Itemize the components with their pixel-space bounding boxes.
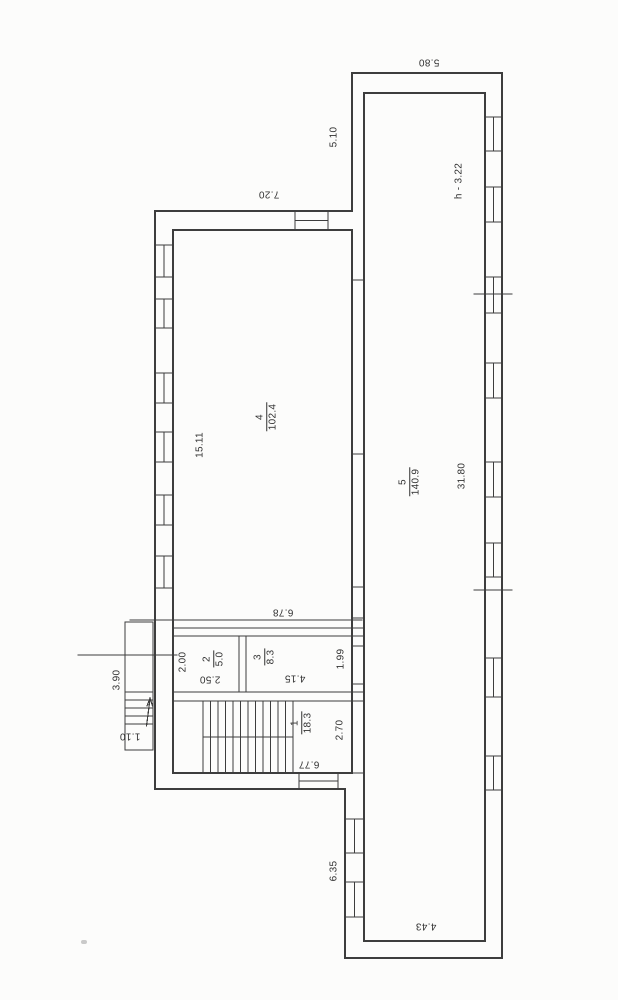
- dim-steps-width: 1.10: [120, 731, 141, 742]
- room-number: 2: [202, 656, 213, 662]
- dimension-lines: [78, 294, 512, 655]
- dim-corridor-width: 4.43: [416, 921, 437, 932]
- outer-walls: [155, 73, 502, 958]
- floor-plan-drawing: [0, 0, 618, 1000]
- room-label-5: 5 140.9: [398, 468, 422, 497]
- room-area: 18.3: [301, 712, 314, 735]
- bottom-wall-door: [299, 773, 338, 789]
- top-wall-window: [295, 211, 328, 230]
- entrance-arrow: [147, 698, 153, 726]
- room-number: 5: [398, 479, 409, 485]
- windows-right-wall: [485, 117, 502, 790]
- dim-height-note: h - 3.22: [454, 163, 465, 199]
- staircase: [203, 701, 293, 773]
- room-number: 1: [290, 720, 301, 726]
- room-label-3: 3 8.3: [253, 649, 277, 666]
- windows-left-wall: [155, 245, 173, 588]
- room-area: 102.4: [266, 403, 279, 432]
- dim-room2-width: 2.50: [200, 674, 221, 685]
- dim-room3-width: 4.15: [285, 673, 306, 684]
- scan-artifact: [81, 940, 87, 944]
- dim-room4-length: 15.11: [195, 432, 206, 458]
- dim-room3-depth: 1.99: [336, 649, 347, 670]
- room-label-2: 2 5.0: [202, 651, 226, 668]
- windows-bottom-wing: [345, 819, 364, 917]
- room-area: 8.3: [264, 649, 277, 666]
- floor-plan: 4 102.4 5 140.9 2 5.0 3 8.3 1 18.3 5.80 …: [0, 0, 618, 1000]
- dim-room4-width: 6.78: [273, 607, 294, 618]
- dim-room1-width: 6.77: [299, 759, 320, 770]
- room-area: 140.9: [409, 468, 422, 497]
- dim-room1-depth: 2.70: [335, 720, 346, 741]
- room-number: 4: [255, 414, 266, 420]
- room-number: 3: [253, 654, 264, 660]
- dim-annex-top-height: 5.10: [329, 127, 340, 148]
- scanned-floor-plan-page: 4 102.4 5 140.9 2 5.0 3 8.3 1 18.3 5.80 …: [0, 0, 618, 1000]
- dim-room2-depth: 2.00: [178, 652, 189, 673]
- room-label-4: 4 102.4: [255, 403, 279, 432]
- dim-main-top-width: 7.20: [259, 189, 280, 200]
- dim-corridor-top-width: 5.80: [419, 57, 440, 68]
- room-area: 5.0: [213, 651, 226, 668]
- room-label-1: 1 18.3: [290, 712, 314, 735]
- dim-porch-length: 3.90: [112, 670, 123, 691]
- dim-wing-left-segment: 6.35: [329, 861, 340, 882]
- partition-walls: [173, 280, 364, 773]
- dim-corridor-length: 31.80: [457, 463, 468, 490]
